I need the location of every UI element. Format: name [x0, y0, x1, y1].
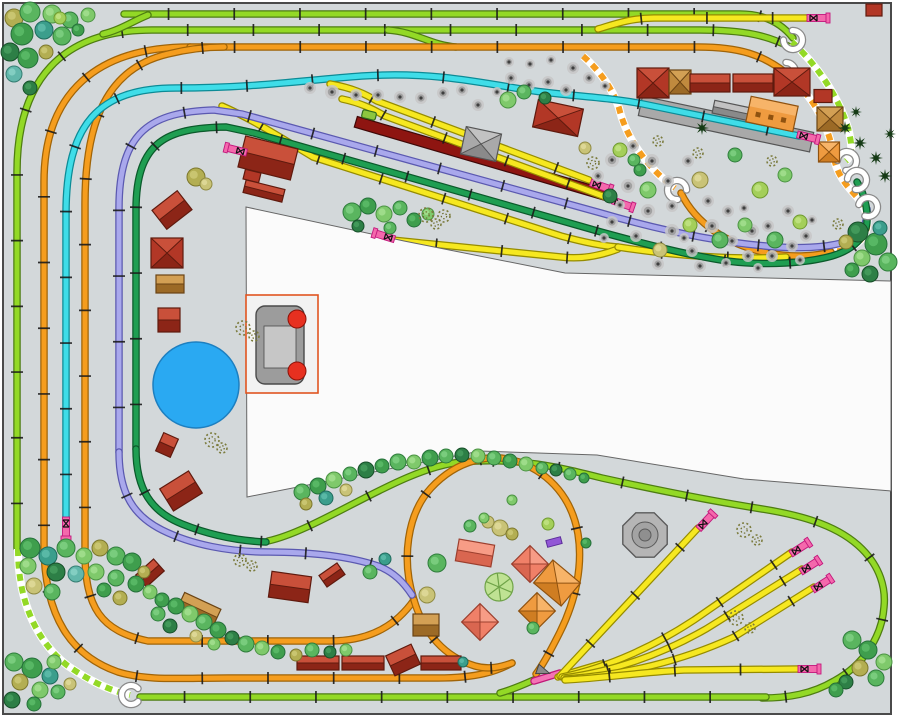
- buffer-stop[interactable]: [798, 664, 821, 674]
- building[interactable]: [297, 656, 339, 670]
- tree[interactable]: [196, 614, 212, 630]
- tree[interactable]: [542, 518, 554, 530]
- tree[interactable]: [68, 566, 84, 582]
- vehicle-light: [288, 310, 306, 328]
- building[interactable]: [268, 571, 311, 602]
- tree[interactable]: [628, 154, 640, 166]
- tree[interactable]: [694, 260, 706, 272]
- tree[interactable]: [782, 205, 794, 217]
- tree[interactable]: [35, 21, 53, 39]
- tree[interactable]: [53, 27, 71, 45]
- tree[interactable]: [340, 484, 352, 496]
- tree[interactable]: [753, 263, 763, 273]
- tree[interactable]: [471, 449, 485, 463]
- tree[interactable]: [600, 81, 610, 91]
- tree[interactable]: [20, 2, 40, 22]
- buffer-stop[interactable]: [807, 13, 830, 23]
- tree[interactable]: [762, 220, 774, 232]
- tree[interactable]: [190, 630, 202, 642]
- tree[interactable]: [683, 218, 697, 232]
- tree[interactable]: [225, 631, 239, 645]
- tree[interactable]: [92, 540, 108, 556]
- tree[interactable]: [878, 169, 892, 183]
- tree[interactable]: [507, 495, 517, 505]
- tree[interactable]: [393, 201, 407, 215]
- tree[interactable]: [879, 253, 897, 271]
- tree[interactable]: [852, 660, 868, 676]
- tree[interactable]: [868, 670, 884, 686]
- building[interactable]: [421, 656, 461, 670]
- tree[interactable]: [722, 205, 734, 217]
- tree[interactable]: [32, 682, 48, 698]
- tree[interactable]: [326, 472, 342, 488]
- tree[interactable]: [630, 230, 642, 242]
- building[interactable]: [342, 656, 384, 670]
- tree[interactable]: [456, 84, 468, 96]
- tree[interactable]: [546, 55, 556, 65]
- tree[interactable]: [599, 233, 609, 243]
- tree[interactable]: [39, 547, 57, 565]
- building[interactable]: [690, 74, 730, 92]
- tree[interactable]: [238, 636, 254, 652]
- tree[interactable]: [340, 644, 352, 656]
- tree[interactable]: [300, 498, 312, 510]
- tree[interactable]: [22, 658, 42, 678]
- tree[interactable]: [12, 674, 28, 690]
- tree[interactable]: [479, 513, 489, 523]
- tree[interactable]: [97, 583, 111, 597]
- tree[interactable]: [606, 216, 618, 228]
- tree[interactable]: [536, 462, 548, 474]
- tree[interactable]: [415, 92, 427, 104]
- tree[interactable]: [255, 641, 269, 655]
- tree[interactable]: [542, 76, 554, 88]
- tree[interactable]: [210, 622, 226, 638]
- tree[interactable]: [42, 668, 58, 684]
- tree[interactable]: [455, 448, 469, 462]
- tree[interactable]: [464, 520, 476, 532]
- tree[interactable]: [865, 233, 887, 255]
- tree[interactable]: [506, 528, 518, 540]
- tree[interactable]: [151, 607, 165, 621]
- tree[interactable]: [324, 646, 336, 658]
- tree[interactable]: [800, 230, 812, 242]
- tree[interactable]: [352, 220, 364, 232]
- tree[interactable]: [39, 45, 53, 59]
- tree[interactable]: [343, 467, 357, 481]
- tree[interactable]: [621, 179, 635, 193]
- tree[interactable]: [290, 649, 302, 661]
- tree[interactable]: [390, 454, 406, 470]
- tree[interactable]: [422, 208, 434, 220]
- tree[interactable]: [682, 155, 694, 167]
- tree[interactable]: [739, 203, 749, 213]
- tree[interactable]: [26, 578, 42, 594]
- tree[interactable]: [742, 250, 754, 262]
- tree[interactable]: [702, 195, 714, 207]
- tree[interactable]: [18, 48, 38, 68]
- building[interactable]: [413, 614, 439, 636]
- building[interactable]: [151, 238, 183, 268]
- tree[interactable]: [23, 81, 37, 95]
- tree[interactable]: [873, 221, 887, 235]
- tree[interactable]: [527, 622, 539, 634]
- tree[interactable]: [786, 240, 798, 252]
- tree[interactable]: [182, 606, 198, 622]
- tree[interactable]: [665, 224, 679, 238]
- tree[interactable]: [419, 587, 435, 603]
- tree[interactable]: [869, 151, 883, 165]
- tree[interactable]: [113, 591, 127, 605]
- tree[interactable]: [54, 12, 66, 24]
- tree[interactable]: [525, 59, 535, 69]
- tree[interactable]: [200, 178, 212, 190]
- tree[interactable]: [859, 641, 877, 659]
- tree[interactable]: [6, 66, 22, 82]
- tree[interactable]: [592, 170, 604, 182]
- building[interactable]: [733, 74, 773, 92]
- tree[interactable]: [613, 143, 627, 157]
- tree[interactable]: [845, 263, 859, 277]
- tree[interactable]: [437, 87, 449, 99]
- building[interactable]: [866, 4, 882, 16]
- tree[interactable]: [64, 678, 76, 690]
- tree[interactable]: [128, 576, 144, 592]
- tree[interactable]: [793, 215, 807, 229]
- tree[interactable]: [305, 643, 319, 657]
- tree[interactable]: [503, 454, 517, 468]
- tree[interactable]: [564, 468, 576, 480]
- tree[interactable]: [738, 218, 752, 232]
- tree[interactable]: [376, 206, 392, 222]
- tree[interactable]: [504, 57, 514, 67]
- tree[interactable]: [4, 692, 20, 708]
- tree[interactable]: [560, 84, 572, 96]
- tree[interactable]: [360, 198, 376, 214]
- tree[interactable]: [492, 87, 502, 97]
- tree[interactable]: [752, 182, 768, 198]
- tree[interactable]: [485, 573, 513, 601]
- tree[interactable]: [1, 43, 19, 61]
- pond[interactable]: [153, 342, 239, 428]
- tree[interactable]: [712, 232, 728, 248]
- tree[interactable]: [603, 189, 617, 203]
- track-plan-canvas: [0, 0, 898, 721]
- vehicle-light: [288, 362, 306, 380]
- tree[interactable]: [579, 473, 589, 483]
- tree[interactable]: [271, 645, 285, 659]
- tree[interactable]: [505, 72, 517, 84]
- tree[interactable]: [640, 182, 656, 198]
- building[interactable]: [814, 90, 832, 103]
- tree[interactable]: [487, 451, 501, 465]
- tree[interactable]: [76, 548, 92, 564]
- tree[interactable]: [567, 62, 579, 74]
- tree[interactable]: [705, 219, 719, 233]
- tree[interactable]: [11, 23, 33, 45]
- tree[interactable]: [581, 538, 591, 548]
- vehicle-cab: [264, 326, 296, 368]
- tree[interactable]: [384, 222, 396, 234]
- tree[interactable]: [439, 449, 453, 463]
- tree[interactable]: [325, 85, 339, 99]
- tree[interactable]: [839, 235, 853, 249]
- tree[interactable]: [695, 121, 709, 135]
- selected-vehicle[interactable]: [246, 295, 318, 393]
- tree[interactable]: [579, 142, 591, 154]
- tree[interactable]: [807, 215, 817, 225]
- tree[interactable]: [47, 563, 65, 581]
- tree[interactable]: [375, 459, 389, 473]
- building[interactable]: [158, 308, 180, 332]
- tree[interactable]: [627, 140, 639, 152]
- tree[interactable]: [652, 258, 664, 270]
- tree[interactable]: [721, 258, 731, 268]
- tree[interactable]: [155, 593, 169, 607]
- buffer-stop[interactable]: [61, 517, 71, 540]
- tree[interactable]: [44, 584, 60, 600]
- tree[interactable]: [81, 8, 95, 22]
- tree[interactable]: [407, 213, 421, 227]
- tree[interactable]: [107, 547, 125, 565]
- tree[interactable]: [662, 175, 674, 187]
- tree[interactable]: [168, 598, 184, 614]
- tree[interactable]: [208, 638, 220, 650]
- layout-drawing: [0, 0, 898, 721]
- tree[interactable]: [884, 128, 896, 140]
- tree[interactable]: [57, 539, 75, 557]
- building[interactable]: [774, 68, 810, 96]
- tree[interactable]: [5, 653, 23, 671]
- tree[interactable]: [766, 250, 778, 262]
- tree[interactable]: [838, 121, 852, 135]
- tree[interactable]: [123, 553, 141, 571]
- tree[interactable]: [304, 82, 316, 94]
- tree[interactable]: [517, 85, 531, 99]
- tree[interactable]: [372, 89, 384, 101]
- tree[interactable]: [653, 243, 667, 257]
- tree[interactable]: [422, 450, 438, 466]
- tree[interactable]: [850, 106, 862, 118]
- tree[interactable]: [20, 558, 36, 574]
- tree[interactable]: [363, 565, 377, 579]
- tree[interactable]: [428, 554, 446, 572]
- tree[interactable]: [358, 462, 374, 478]
- tree[interactable]: [350, 89, 362, 101]
- tree[interactable]: [795, 255, 805, 265]
- building[interactable]: [669, 70, 691, 94]
- tree[interactable]: [679, 233, 689, 243]
- tree[interactable]: [27, 697, 41, 711]
- tree[interactable]: [88, 564, 104, 580]
- tree[interactable]: [550, 464, 562, 476]
- tree[interactable]: [666, 200, 678, 212]
- tree[interactable]: [843, 631, 861, 649]
- tree[interactable]: [728, 148, 742, 162]
- tree[interactable]: [829, 683, 843, 697]
- tree[interactable]: [51, 685, 65, 699]
- building[interactable]: [156, 275, 184, 293]
- tree[interactable]: [319, 491, 333, 505]
- tree[interactable]: [72, 24, 84, 36]
- tree[interactable]: [138, 566, 150, 578]
- tree[interactable]: [163, 619, 177, 633]
- tree[interactable]: [686, 245, 698, 257]
- water-tower[interactable]: [623, 513, 667, 557]
- tree[interactable]: [379, 553, 391, 565]
- building[interactable]: [817, 107, 843, 131]
- tree[interactable]: [20, 538, 40, 558]
- tree[interactable]: [539, 92, 551, 104]
- tree[interactable]: [472, 99, 484, 111]
- tree[interactable]: [394, 91, 406, 103]
- tree[interactable]: [458, 657, 468, 667]
- tree[interactable]: [615, 200, 625, 210]
- tree[interactable]: [143, 585, 157, 599]
- tree[interactable]: [853, 136, 867, 150]
- tree[interactable]: [778, 168, 792, 182]
- tree[interactable]: [876, 654, 892, 670]
- building[interactable]: [637, 68, 669, 98]
- tree[interactable]: [645, 154, 659, 168]
- tree[interactable]: [407, 455, 421, 469]
- tree[interactable]: [108, 570, 124, 586]
- tree[interactable]: [692, 172, 708, 188]
- tree[interactable]: [854, 250, 870, 266]
- tree[interactable]: [294, 484, 310, 500]
- building[interactable]: [819, 142, 840, 162]
- tree[interactable]: [500, 92, 516, 108]
- tree[interactable]: [47, 655, 61, 669]
- tree[interactable]: [641, 204, 655, 218]
- tree[interactable]: [519, 457, 533, 471]
- tree[interactable]: [767, 232, 783, 248]
- tree[interactable]: [583, 72, 595, 84]
- tree[interactable]: [862, 266, 878, 282]
- tree[interactable]: [343, 203, 361, 221]
